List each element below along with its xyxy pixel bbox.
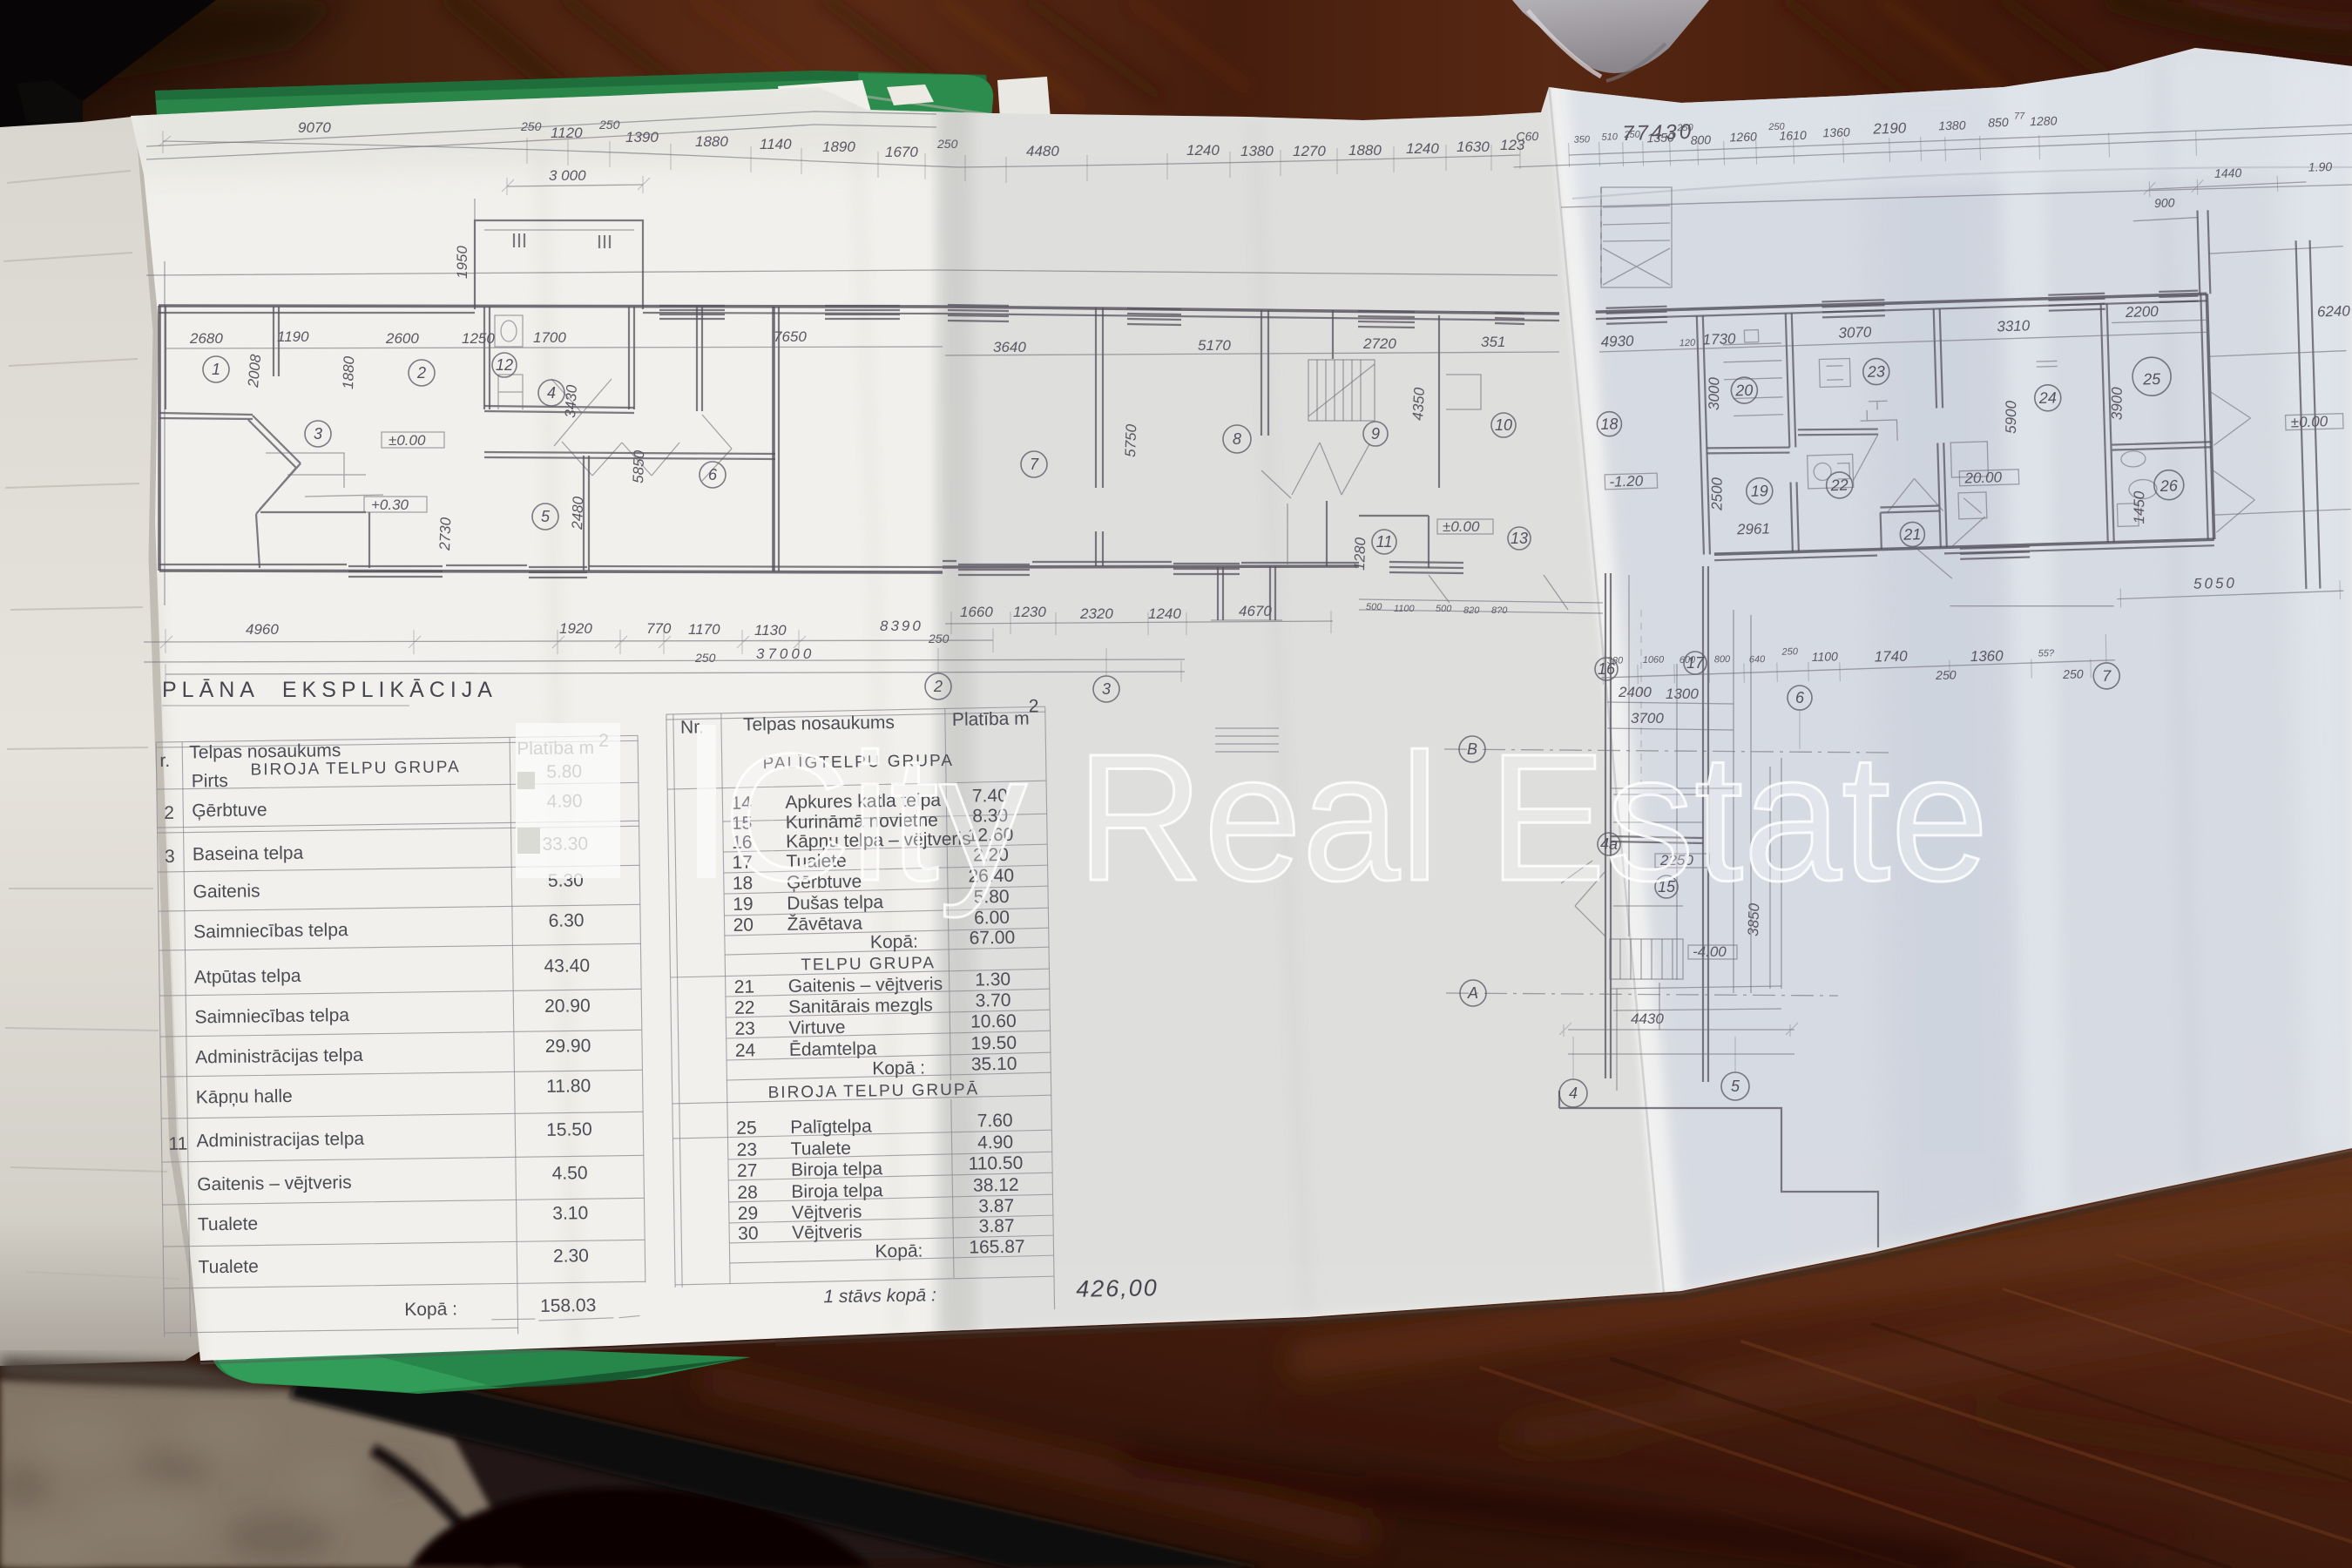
svg-text:4350: 4350: [1409, 387, 1428, 421]
svg-text:250: 250: [598, 118, 620, 132]
svg-text:1880: 1880: [695, 133, 728, 150]
svg-text:2190: 2190: [1872, 119, 1907, 137]
svg-text:3.10: 3.10: [552, 1203, 588, 1224]
svg-text:Gaitenis: Gaitenis: [193, 881, 260, 902]
svg-text:1140: 1140: [760, 136, 792, 152]
svg-text:1380: 1380: [1938, 118, 1966, 132]
svg-text:11: 11: [168, 1134, 187, 1154]
svg-text:18: 18: [1600, 415, 1619, 433]
svg-text:250: 250: [1781, 646, 1798, 657]
svg-text:29.90: 29.90: [545, 1036, 591, 1057]
svg-text:25: 25: [2142, 370, 2162, 389]
svg-text:1880: 1880: [340, 355, 357, 389]
svg-text:3: 3: [314, 425, 322, 443]
svg-text:1240: 1240: [1406, 140, 1439, 157]
svg-text:2600: 2600: [385, 330, 419, 347]
svg-text:35.10: 35.10: [971, 1054, 1017, 1075]
svg-text:5: 5: [541, 508, 551, 525]
svg-text:600: 600: [1680, 655, 1696, 666]
svg-text:20.90: 20.90: [544, 996, 591, 1017]
svg-text:351: 351: [1481, 334, 1505, 350]
svg-text:22: 22: [734, 997, 755, 1017]
svg-text:250: 250: [694, 651, 716, 665]
svg-text:9: 9: [1371, 425, 1380, 443]
svg-text:1300: 1300: [1666, 686, 1699, 702]
svg-text:2730: 2730: [436, 517, 454, 551]
svg-text:4: 4: [1569, 1085, 1578, 1102]
svg-text:23: 23: [1866, 362, 1885, 381]
svg-text:426,00: 426,00: [1076, 1274, 1159, 1301]
svg-text:1360: 1360: [1970, 647, 2004, 665]
svg-text:1260: 1260: [1729, 130, 1757, 145]
svg-text:55?: 55?: [2038, 648, 2055, 659]
svg-text:25: 25: [736, 1118, 757, 1138]
svg-text:2: 2: [933, 678, 943, 695]
svg-text:Vējtveris: Vējtveris: [792, 1202, 862, 1223]
svg-text:Vējtveris: Vējtveris: [792, 1222, 862, 1243]
svg-text:29: 29: [738, 1203, 759, 1223]
svg-text:250: 250: [2062, 666, 2084, 681]
svg-text:r.: r.: [159, 751, 170, 771]
svg-text:2008: 2008: [245, 353, 264, 389]
svg-text:2500: 2500: [1708, 476, 1725, 510]
svg-text:Ģērbtuve: Ģērbtuve: [192, 800, 267, 821]
svg-text:1250: 1250: [462, 330, 495, 347]
svg-text:PLĀNA EKSPLIKĀCIJA: PLĀNA EKSPLIKĀCIJA: [162, 678, 497, 702]
svg-text:820: 820: [1463, 605, 1480, 616]
svg-text:1920: 1920: [559, 620, 592, 637]
svg-text:77: 77: [2014, 111, 2025, 121]
svg-text:1700: 1700: [533, 329, 566, 346]
svg-text:1230: 1230: [1013, 604, 1046, 620]
svg-text:6: 6: [708, 466, 718, 483]
svg-text:28: 28: [737, 1182, 758, 1202]
svg-text:3.70: 3.70: [975, 990, 1010, 1011]
svg-text:Baseina telpa: Baseina telpa: [193, 843, 304, 865]
svg-text:1740: 1740: [1875, 648, 1909, 666]
svg-text:250: 250: [520, 119, 542, 133]
svg-text:1360: 1360: [1822, 125, 1850, 139]
svg-text:2200: 2200: [2125, 303, 2159, 321]
svg-text:Kopā:: Kopā:: [870, 932, 918, 953]
svg-text:770: 770: [646, 620, 672, 637]
svg-text:1190: 1190: [277, 328, 309, 345]
svg-text:7: 7: [1030, 456, 1039, 473]
svg-text:510: 510: [1601, 132, 1619, 143]
svg-text:250: 250: [936, 137, 958, 151]
svg-text:250: 250: [928, 632, 950, 645]
svg-text:1390: 1390: [625, 129, 659, 145]
svg-text:3 000: 3 000: [549, 167, 586, 184]
svg-text:7: 7: [2102, 667, 2112, 685]
svg-text:3.87: 3.87: [978, 1196, 1014, 1217]
svg-text:1440: 1440: [2214, 166, 2242, 180]
svg-text:13: 13: [1511, 530, 1528, 547]
svg-text:±0.00: ±0.00: [389, 432, 426, 449]
svg-text:38.12: 38.12: [973, 1175, 1019, 1196]
svg-text:±0.00: ±0.00: [2290, 413, 2328, 430]
svg-text:BIROJA TELPU GRUPA: BIROJA TELPU GRUPA: [250, 758, 460, 779]
svg-text:67.00: 67.00: [969, 928, 1015, 949]
svg-text:5170: 5170: [1198, 337, 1231, 354]
svg-text:1.30: 1.30: [975, 970, 1010, 990]
svg-text:900: 900: [2154, 195, 2175, 210]
svg-text:Administrācijas telpa: Administrācijas telpa: [195, 1045, 363, 1068]
svg-text:43.40: 43.40: [544, 956, 590, 977]
svg-text:30: 30: [738, 1223, 759, 1243]
svg-text:21: 21: [1903, 525, 1922, 544]
svg-text:7.60: 7.60: [977, 1111, 1013, 1132]
svg-text:1450: 1450: [2131, 490, 2147, 524]
svg-text:1240: 1240: [1148, 605, 1181, 622]
svg-text:1280: 1280: [2030, 113, 2058, 128]
svg-text:120: 120: [1680, 338, 1697, 349]
svg-text:19.50: 19.50: [970, 1033, 1017, 1054]
svg-text:37000: 37000: [756, 645, 814, 662]
svg-text:19: 19: [1751, 482, 1769, 500]
svg-text:Biroja telpa: Biroja telpa: [791, 1159, 883, 1180]
svg-text:12: 12: [496, 356, 513, 374]
svg-text:2720: 2720: [1362, 335, 1396, 352]
svg-text:Atpūtas telpa: Atpūtas telpa: [194, 966, 301, 988]
svg-text:1060: 1060: [1643, 655, 1666, 666]
svg-text:15.50: 15.50: [546, 1119, 592, 1140]
svg-text:Saimniecības telpa: Saimniecības telpa: [194, 1005, 349, 1027]
svg-text:2480: 2480: [569, 496, 586, 531]
svg-text:3: 3: [1102, 680, 1111, 698]
svg-text:23: 23: [737, 1139, 758, 1159]
svg-text:2320: 2320: [1079, 605, 1113, 622]
svg-text:Ēdamtelpa: Ēdamtelpa: [789, 1038, 877, 1060]
svg-text:4670: 4670: [1239, 603, 1272, 619]
svg-text:2680: 2680: [189, 330, 223, 347]
svg-text:+0.30: +0.30: [371, 497, 409, 513]
svg-text:Kopā:: Kopā:: [875, 1240, 923, 1261]
svg-text:1660: 1660: [960, 604, 993, 620]
svg-text:A: A: [1467, 984, 1478, 1002]
svg-text:1280: 1280: [1351, 537, 1369, 571]
svg-text:500: 500: [1436, 604, 1452, 614]
svg-text:Virtuve: Virtuve: [788, 1017, 845, 1038]
svg-text:10.60: 10.60: [970, 1011, 1017, 1032]
svg-text:5: 5: [1731, 1078, 1740, 1095]
svg-text:24: 24: [735, 1040, 756, 1060]
svg-text:6240: 6240: [2317, 302, 2351, 320]
svg-text:1270: 1270: [1293, 143, 1326, 159]
svg-text:165.87: 165.87: [969, 1237, 1025, 1258]
svg-text:2400: 2400: [1618, 684, 1652, 700]
svg-text:Sanitārais mezgls: Sanitārais mezgls: [788, 995, 933, 1017]
svg-text:850: 850: [1988, 115, 2009, 130]
svg-text:4480: 4480: [1026, 143, 1059, 159]
svg-text:2: 2: [1029, 696, 1039, 716]
svg-text:BIROJA TELPU GRUPĀ: BIROJA TELPU GRUPĀ: [767, 1080, 979, 1102]
svg-text:1610: 1610: [1779, 128, 1807, 143]
svg-text:1880: 1880: [1348, 142, 1382, 159]
svg-text:Kopā :: Kopā :: [872, 1058, 925, 1078]
svg-text:10: 10: [1495, 416, 1512, 434]
svg-text:1: 1: [212, 361, 220, 378]
svg-text:Tualete: Tualete: [790, 1139, 851, 1159]
svg-text:1630: 1630: [1456, 139, 1490, 155]
svg-text:500: 500: [1366, 602, 1382, 612]
svg-text:2961: 2961: [1736, 520, 1770, 537]
svg-text:-4.00: -4.00: [1693, 943, 1727, 960]
svg-text:4.90: 4.90: [977, 1132, 1013, 1153]
svg-text:1120: 1120: [551, 125, 583, 141]
svg-text:3.87: 3.87: [978, 1216, 1014, 1237]
svg-text:Tualete: Tualete: [198, 1214, 259, 1235]
svg-text:Gaitenis – vējtveris: Gaitenis – vējtveris: [197, 1173, 352, 1194]
svg-text:3000: 3000: [1706, 377, 1722, 410]
svg-text:2: 2: [164, 803, 174, 823]
svg-text:1100: 1100: [1812, 649, 1839, 664]
svg-text:1170: 1170: [688, 621, 720, 638]
svg-text:110.50: 110.50: [968, 1153, 1023, 1174]
svg-text:1130: 1130: [754, 622, 787, 639]
svg-text:1100: 1100: [1394, 604, 1416, 614]
svg-text:9070: 9070: [298, 119, 331, 136]
svg-text:1950: 1950: [454, 246, 470, 279]
svg-text:±0.00: ±0.00: [1443, 518, 1480, 535]
svg-text:11: 11: [1376, 533, 1393, 551]
svg-text:Saimniecības telpa: Saimniecības telpa: [193, 920, 348, 942]
svg-text:380: 380: [1607, 655, 1624, 666]
svg-text:1240: 1240: [1186, 142, 1220, 159]
svg-text:20: 20: [1734, 382, 1754, 400]
svg-text:City Real Estate: City Real Estate: [723, 717, 1989, 919]
svg-text:24: 24: [2038, 389, 2057, 407]
svg-text:TELPU GRUPA: TELPU GRUPA: [801, 954, 936, 974]
svg-text:350: 350: [1573, 134, 1591, 145]
svg-text:3: 3: [165, 847, 175, 867]
svg-text:7650: 7650: [774, 328, 807, 345]
svg-text:3900: 3900: [2109, 387, 2126, 420]
svg-text:8?0: 8?0: [1491, 605, 1508, 616]
svg-text:5750: 5750: [1122, 423, 1139, 457]
svg-text:Kāpņu halle: Kāpņu halle: [196, 1086, 293, 1108]
svg-text:8390: 8390: [880, 618, 923, 634]
svg-text:1.90: 1.90: [2308, 159, 2333, 174]
svg-text:Biroja telpa: Biroja telpa: [791, 1180, 883, 1202]
svg-text:Palīgtelpa: Palīgtelpa: [790, 1116, 872, 1137]
svg-text:1730: 1730: [1702, 330, 1736, 348]
svg-text:4960: 4960: [246, 621, 279, 638]
svg-text:-1.20: -1.20: [1609, 473, 1644, 490]
svg-text:6: 6: [1795, 689, 1805, 706]
svg-text:Tualete: Tualete: [198, 1257, 259, 1278]
svg-text:3640: 3640: [993, 339, 1026, 355]
svg-text:Pirts: Pirts: [192, 771, 228, 792]
svg-text:11.80: 11.80: [546, 1076, 591, 1097]
svg-text:26: 26: [2159, 476, 2180, 495]
svg-text:5050: 5050: [2193, 575, 2237, 592]
svg-text:800: 800: [1714, 654, 1731, 665]
svg-text:1 stāvs kopā :: 1 stāvs kopā :: [823, 1285, 936, 1307]
svg-text:3310: 3310: [1997, 317, 2031, 335]
svg-text:1380: 1380: [1240, 143, 1274, 159]
svg-text:Kopā :: Kopā :: [404, 1299, 457, 1320]
svg-text:5850: 5850: [630, 449, 647, 483]
svg-text:23: 23: [734, 1018, 755, 1038]
svg-text:27: 27: [737, 1160, 758, 1180]
svg-text:2.30: 2.30: [553, 1246, 589, 1267]
svg-text:6.30: 6.30: [548, 910, 584, 931]
svg-text:3070: 3070: [1838, 324, 1872, 341]
svg-text:4930: 4930: [1600, 333, 1634, 350]
svg-text:20.00: 20.00: [1963, 469, 2003, 486]
svg-text:2: 2: [416, 364, 426, 382]
svg-text:158.03: 158.03: [540, 1295, 597, 1316]
svg-text:250: 250: [1935, 668, 1957, 683]
svg-text:8: 8: [1233, 430, 1241, 448]
svg-text:22: 22: [1829, 476, 1848, 495]
svg-text:1670: 1670: [885, 144, 918, 160]
svg-text:21: 21: [734, 977, 755, 997]
svg-text:4.50: 4.50: [552, 1163, 588, 1184]
svg-text:C60: C60: [1516, 129, 1538, 144]
svg-text:640: 640: [1749, 654, 1766, 665]
svg-text:5900: 5900: [2003, 400, 2019, 433]
svg-text:4: 4: [547, 384, 556, 402]
svg-text:1890: 1890: [822, 139, 855, 155]
svg-text:Administracijas telpa: Administracijas telpa: [196, 1129, 364, 1152]
svg-text:77430: 77430: [1622, 120, 1694, 145]
svg-text:Gaitenis – vējtveris: Gaitenis – vējtveris: [788, 974, 943, 997]
